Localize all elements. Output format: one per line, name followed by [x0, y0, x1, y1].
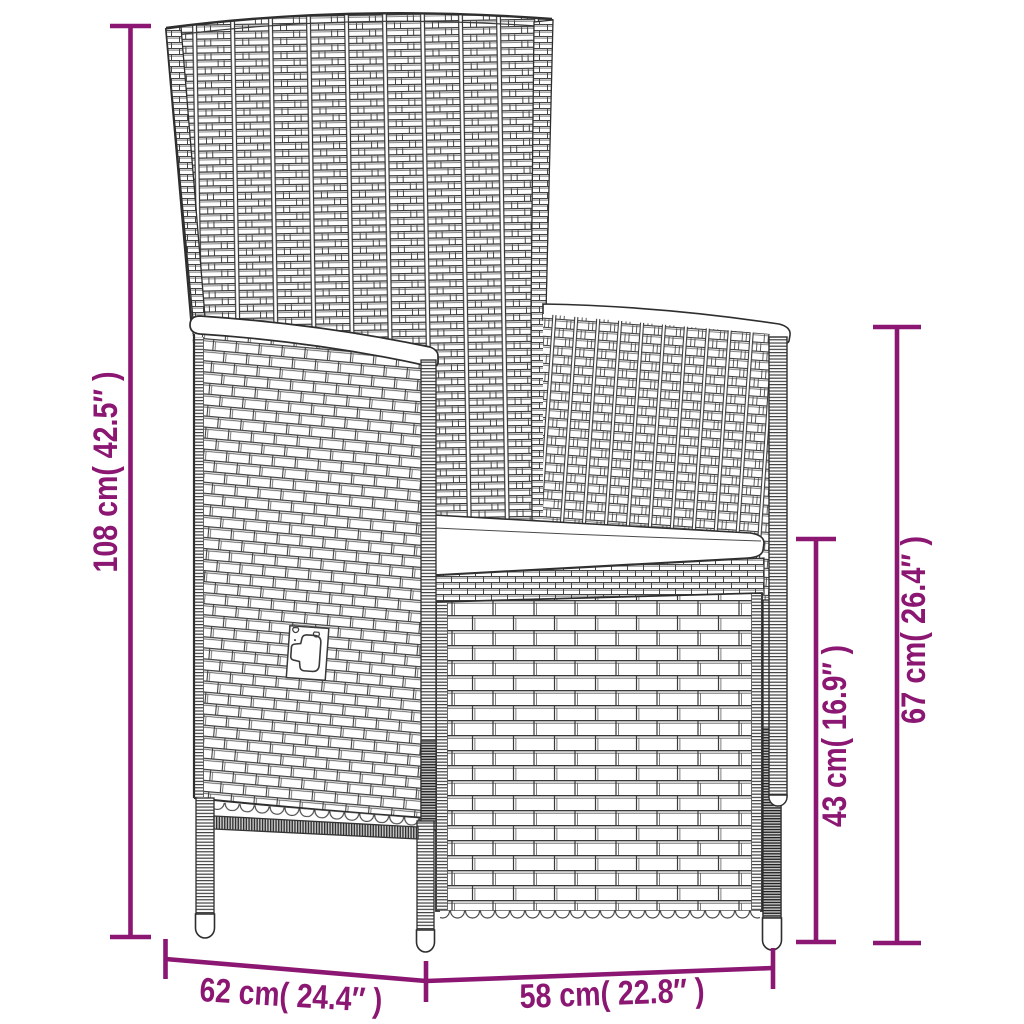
svg-text:108 cm( 42.5″ ): 108 cm( 42.5″ )	[87, 372, 125, 573]
svg-text:62 cm( 24.4″ ): 62 cm( 24.4″ )	[199, 971, 384, 1020]
svg-text:58 cm( 22.8″ ): 58 cm( 22.8″ )	[519, 972, 705, 1016]
svg-text:43 cm( 16.9″ ): 43 cm( 16.9″ )	[816, 645, 854, 827]
svg-text:67 cm( 26.4″ ): 67 cm( 26.4″ )	[895, 536, 933, 724]
